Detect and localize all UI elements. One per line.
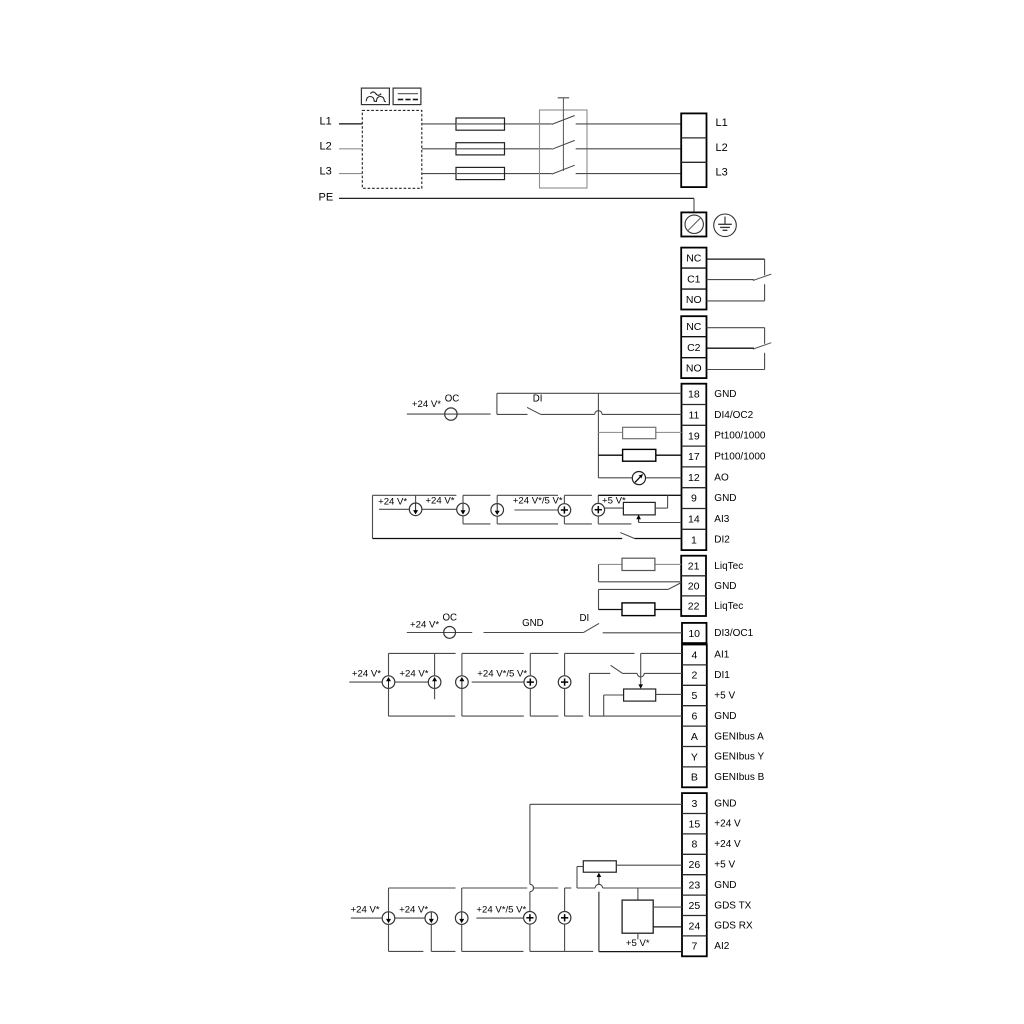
svg-text:Pt100/1000: Pt100/1000: [714, 431, 766, 442]
svg-text:PE: PE: [319, 192, 334, 204]
svg-text:+24 V*: +24 V*: [412, 399, 441, 410]
svg-text:5: 5: [691, 690, 697, 702]
svg-text:C2: C2: [687, 342, 701, 354]
svg-text:GND: GND: [714, 493, 736, 504]
svg-text:GND: GND: [714, 798, 736, 809]
svg-text:+24 V*: +24 V*: [399, 904, 428, 915]
svg-text:LiqTec: LiqTec: [714, 601, 743, 612]
svg-text:AI1: AI1: [714, 650, 729, 661]
svg-text:A: A: [691, 731, 698, 743]
svg-text:+24 V: +24 V: [714, 839, 741, 850]
svg-text:8: 8: [691, 839, 697, 851]
svg-text:DI3/OC1: DI3/OC1: [714, 628, 753, 639]
svg-text:NO: NO: [686, 363, 702, 375]
svg-text:+5 V*: +5 V*: [626, 938, 650, 949]
svg-text:22: 22: [688, 601, 700, 613]
svg-text:19: 19: [688, 430, 700, 442]
svg-text:+24 V*/5 V*: +24 V*/5 V*: [476, 904, 526, 915]
svg-text:Pt100/1000: Pt100/1000: [714, 452, 766, 463]
svg-text:C1: C1: [687, 273, 701, 285]
svg-text:GND: GND: [714, 581, 736, 592]
svg-text:4: 4: [691, 649, 697, 661]
svg-text:+24 V: +24 V: [714, 819, 741, 830]
svg-text:Y: Y: [691, 751, 698, 763]
svg-text:+24 V*: +24 V*: [425, 495, 454, 506]
svg-text:LiqTec: LiqTec: [714, 561, 743, 572]
svg-text:+5 V: +5 V: [714, 691, 735, 702]
svg-text:+24 V*/5 V*: +24 V*/5 V*: [477, 668, 527, 679]
svg-text:6: 6: [691, 711, 697, 723]
svg-text:23: 23: [689, 880, 701, 892]
svg-text:DI2: DI2: [714, 535, 730, 546]
svg-text:20: 20: [688, 580, 700, 592]
svg-text:GDS RX: GDS RX: [714, 921, 753, 932]
svg-text:9: 9: [691, 493, 697, 505]
svg-text:7: 7: [691, 941, 697, 953]
svg-text:+24 V*: +24 V*: [410, 620, 439, 631]
svg-text:L2: L2: [716, 142, 728, 154]
svg-text:+5 V: +5 V: [714, 860, 735, 871]
svg-text:GND: GND: [714, 389, 736, 400]
svg-text:+24 V*: +24 V*: [352, 668, 381, 679]
svg-text:DI: DI: [533, 394, 543, 405]
svg-text:OC: OC: [443, 613, 458, 624]
svg-text:GDS TX: GDS TX: [714, 900, 751, 911]
svg-text:11: 11: [688, 410, 699, 422]
svg-text:L1: L1: [716, 117, 728, 129]
svg-text:+24 V*: +24 V*: [351, 904, 380, 915]
svg-text:AI2: AI2: [714, 941, 729, 952]
svg-text:10: 10: [688, 628, 700, 640]
svg-text:NO: NO: [686, 294, 702, 306]
svg-text:DI1: DI1: [714, 670, 730, 681]
svg-text:DI: DI: [580, 613, 590, 624]
svg-text:OC: OC: [445, 393, 460, 404]
svg-text:25: 25: [689, 900, 701, 912]
svg-text:GENIbus B: GENIbus B: [714, 772, 764, 783]
svg-text:B: B: [691, 772, 698, 784]
svg-text:15: 15: [689, 818, 701, 830]
svg-text:NC: NC: [686, 321, 702, 333]
svg-text:+24 V*: +24 V*: [378, 497, 407, 508]
svg-text:L1: L1: [320, 116, 332, 128]
svg-text:L3: L3: [320, 165, 332, 177]
svg-text:GENIbus Y: GENIbus Y: [714, 752, 764, 763]
svg-text:NC: NC: [686, 253, 702, 265]
svg-text:GENIbus A: GENIbus A: [714, 731, 764, 742]
svg-text:12: 12: [688, 472, 700, 484]
svg-text:17: 17: [688, 451, 700, 463]
svg-text:GND: GND: [714, 711, 736, 722]
svg-text:21: 21: [688, 560, 700, 572]
svg-text:+24 V*/5 V*: +24 V*/5 V*: [513, 495, 563, 506]
svg-text:2: 2: [691, 670, 697, 682]
svg-text:GND: GND: [522, 618, 544, 629]
svg-text:14: 14: [688, 514, 700, 526]
svg-text:AI3: AI3: [714, 514, 729, 525]
svg-text:24: 24: [689, 920, 701, 932]
svg-text:AO: AO: [714, 472, 729, 483]
svg-text:1: 1: [691, 534, 697, 546]
svg-text:DI4/OC2: DI4/OC2: [714, 410, 753, 421]
svg-text:3: 3: [691, 798, 697, 810]
svg-text:26: 26: [689, 859, 701, 871]
svg-text:+24 V*: +24 V*: [399, 668, 428, 679]
svg-text:+5 V*: +5 V*: [602, 495, 626, 506]
svg-text:L3: L3: [716, 167, 728, 179]
svg-text:GND: GND: [714, 880, 736, 891]
svg-text:18: 18: [688, 389, 700, 401]
svg-text:L2: L2: [320, 141, 332, 153]
